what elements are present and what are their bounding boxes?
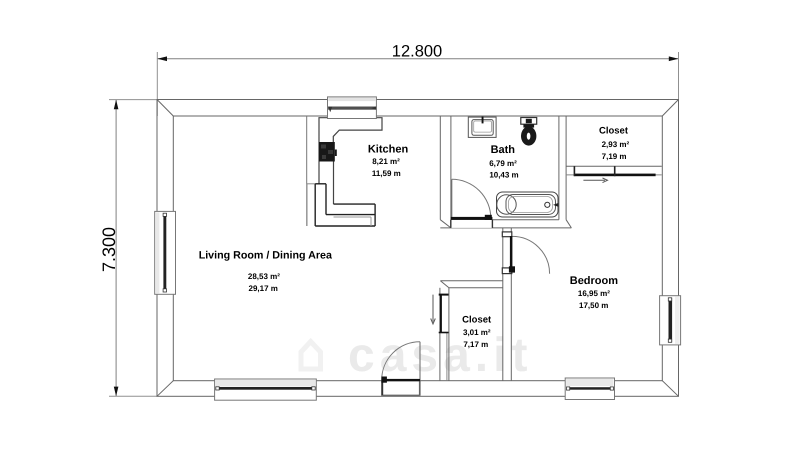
svg-text:7.300: 7.300: [99, 227, 119, 272]
svg-text:16,95 m²: 16,95 m²: [578, 289, 610, 298]
svg-text:17,50 m: 17,50 m: [579, 301, 608, 310]
svg-text:Closet: Closet: [599, 125, 629, 136]
svg-text:7,17 m: 7,17 m: [463, 340, 488, 349]
svg-text:2,93 m²: 2,93 m²: [602, 140, 630, 149]
svg-text:10,43 m: 10,43 m: [489, 170, 518, 179]
svg-text:12.800: 12.800: [392, 43, 442, 61]
svg-text:6,79 m²: 6,79 m²: [489, 159, 517, 168]
svg-text:Living Room / Dining Area: Living Room / Dining Area: [199, 249, 333, 261]
svg-text:Bath: Bath: [491, 144, 516, 156]
svg-text:7,19 m: 7,19 m: [602, 152, 627, 161]
svg-text:8,21 m²: 8,21 m²: [372, 157, 400, 166]
svg-text:28,53 m²: 28,53 m²: [248, 272, 280, 281]
svg-text:29,17 m: 29,17 m: [249, 284, 278, 293]
svg-text:Bedroom: Bedroom: [570, 275, 619, 287]
svg-text:Closet: Closet: [462, 315, 492, 326]
svg-text:Kitchen: Kitchen: [368, 143, 409, 155]
svg-text:11,59 m: 11,59 m: [372, 169, 401, 178]
svg-text:3,01 m²: 3,01 m²: [463, 328, 491, 337]
